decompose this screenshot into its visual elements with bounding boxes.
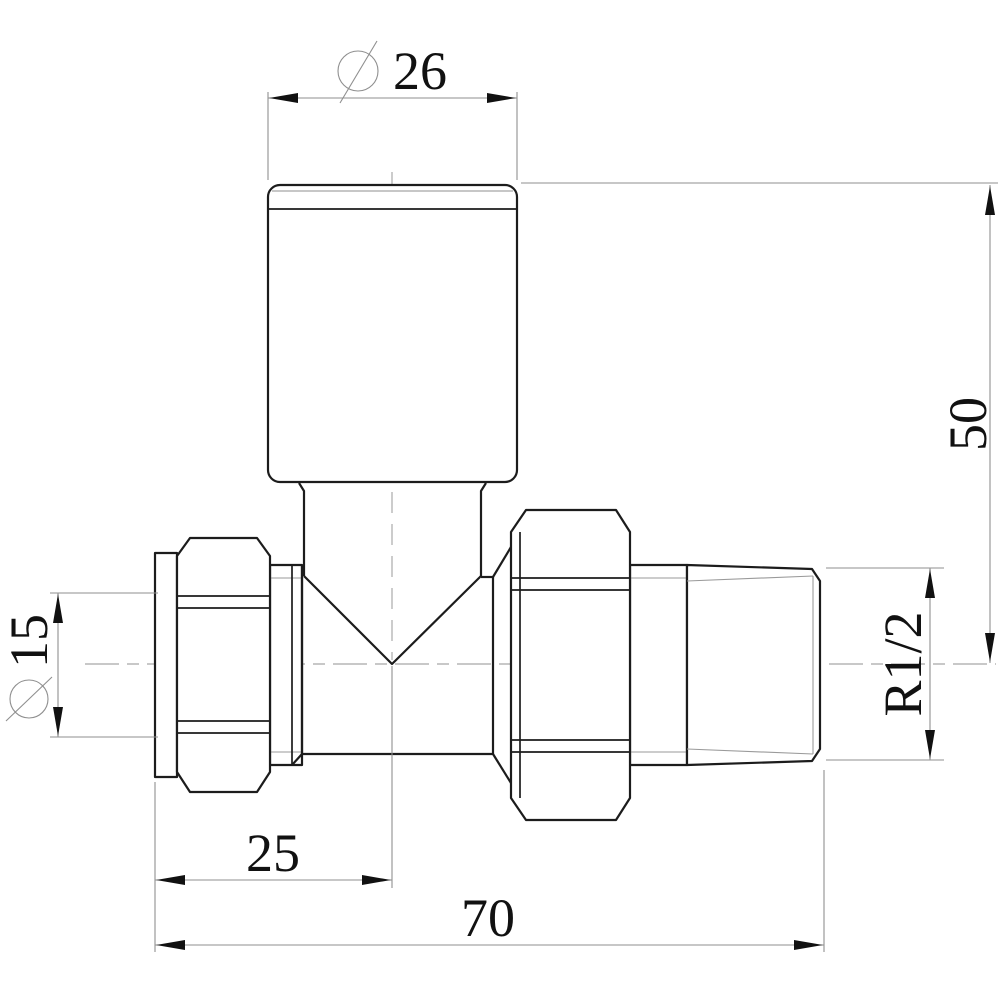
left-tail-flange [155, 553, 177, 777]
dimension-value: 15 [0, 614, 59, 668]
arrowhead [985, 633, 995, 662]
dim-left-diameter: 15 [0, 593, 158, 737]
union-nut-outline [511, 510, 630, 820]
dimension-value: 50 [938, 397, 998, 451]
diameter-sign [338, 41, 378, 103]
thread-outline [687, 565, 820, 765]
arrowhead [53, 707, 63, 736]
diameter-slash [6, 677, 52, 721]
neck-left-edge [299, 483, 304, 576]
neck-right-edge [481, 483, 486, 576]
left-cylinder-body [270, 565, 302, 765]
diameter-slash [340, 41, 377, 103]
arrowhead [925, 730, 935, 759]
arrowhead [156, 940, 185, 950]
valve-center-body [292, 547, 511, 783]
dim-top-diameter: 26 [268, 41, 517, 180]
right-cylinder-body [630, 565, 687, 765]
diameter-circle [338, 51, 378, 91]
arrowhead [985, 186, 995, 215]
arrowhead [362, 875, 391, 885]
dimension-value: 25 [246, 823, 300, 883]
arrowhead [487, 93, 516, 103]
right-union-nut [511, 510, 630, 820]
arrowhead [925, 569, 935, 598]
right-cylinder [630, 565, 687, 765]
dimension-value: R1/2 [873, 611, 933, 716]
diameter-sign [6, 677, 52, 721]
left-compression-nut [177, 538, 270, 792]
dimension-value: 26 [393, 41, 447, 101]
left-nut-outline [177, 538, 270, 792]
valve-head [268, 185, 517, 482]
body-top-right-chamfer [493, 547, 511, 577]
body-bottom-right-chamfer [493, 754, 511, 783]
technical-drawing-canvas: 26 50 15 R1/2 25 [0, 0, 1000, 1000]
radiator-valve-drawing: 26 50 15 R1/2 25 [0, 0, 1000, 1000]
male-thread [687, 565, 820, 765]
arrowhead [794, 940, 823, 950]
head-outline [268, 185, 517, 482]
dimension-value: 70 [461, 888, 515, 948]
arrowhead [156, 875, 185, 885]
arrowhead [269, 93, 298, 103]
left-cylinder [270, 565, 302, 765]
